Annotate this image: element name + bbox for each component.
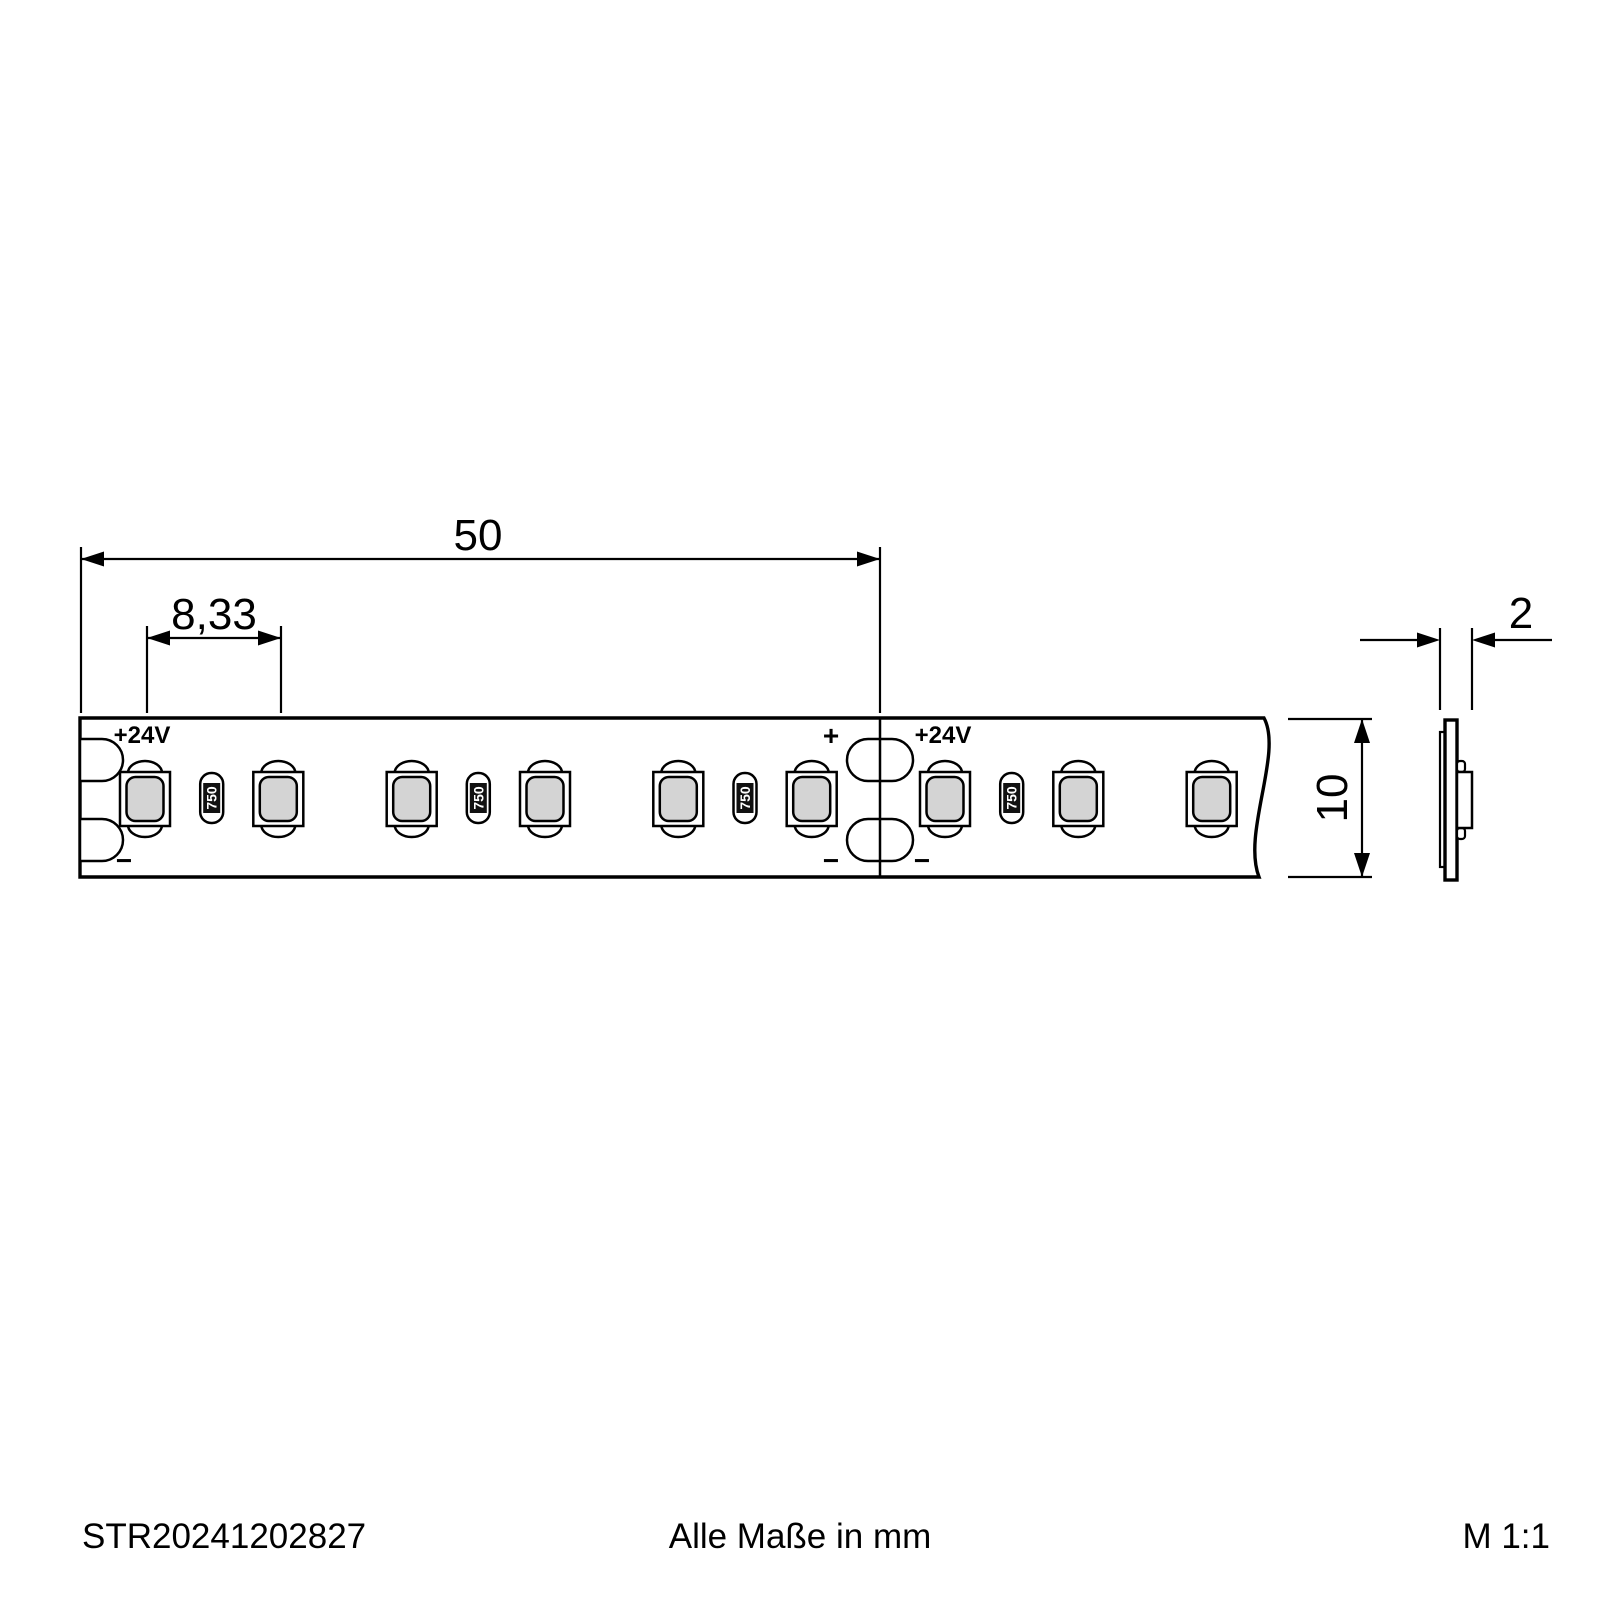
- dimension-value: 2: [1509, 589, 1533, 638]
- led-package: [920, 761, 970, 837]
- minus-marking: −: [116, 845, 132, 876]
- arrowhead: [1472, 633, 1495, 648]
- arrowhead: [147, 631, 170, 646]
- led-package: [520, 761, 570, 837]
- led-side: [1457, 772, 1472, 828]
- led-package: [253, 761, 303, 837]
- arrowhead: [1354, 719, 1370, 743]
- dimension-value: 8,33: [171, 590, 257, 639]
- voltage-marking: +24V: [915, 722, 972, 749]
- article-number: STR20241202827: [82, 1517, 366, 1556]
- resistor: [467, 773, 490, 823]
- led-pad-side: [1457, 761, 1465, 772]
- dimension-strip-thickness: 2: [1360, 589, 1552, 710]
- resistor: [734, 773, 757, 823]
- pcb-side: [1445, 720, 1457, 880]
- resistor: [1000, 773, 1023, 823]
- arrowhead: [1354, 853, 1370, 877]
- voltage-marking: +24V: [114, 722, 171, 749]
- strip-top-view: +24V +24V + − − −: [80, 718, 1269, 877]
- led-package: [1187, 761, 1237, 837]
- led-package: [120, 761, 170, 837]
- led-package: [787, 761, 837, 837]
- plus-marking: +: [823, 720, 839, 751]
- arrowhead: [81, 552, 104, 567]
- drawing-svg: 750 +24V +24V + − − −: [0, 0, 1600, 1600]
- resistor: [200, 773, 223, 823]
- strip-side-view: [1440, 720, 1472, 880]
- led-package: [653, 761, 703, 837]
- led-pad-side: [1457, 828, 1465, 839]
- dimension-strip-width: 10: [1288, 719, 1372, 877]
- scale-note: M 1:1: [1462, 1517, 1550, 1556]
- dimension-value: 50: [454, 511, 503, 560]
- units-note: Alle Maße in mm: [669, 1517, 932, 1556]
- led-strip-technical-drawing: 750 +24V +24V + − − −: [0, 0, 1600, 1600]
- minus-marking: −: [914, 845, 930, 876]
- dimension-value: 10: [1308, 774, 1357, 823]
- led-package: [387, 761, 437, 837]
- minus-marking: −: [823, 845, 839, 876]
- footer: STR20241202827 Alle Maße in mm M 1:1: [82, 1517, 1550, 1556]
- arrowhead: [1417, 633, 1440, 648]
- arrowhead: [857, 552, 880, 567]
- arrowhead: [258, 631, 281, 646]
- led-package: [1053, 761, 1103, 837]
- dimension-led-pitch: 8,33: [147, 590, 281, 713]
